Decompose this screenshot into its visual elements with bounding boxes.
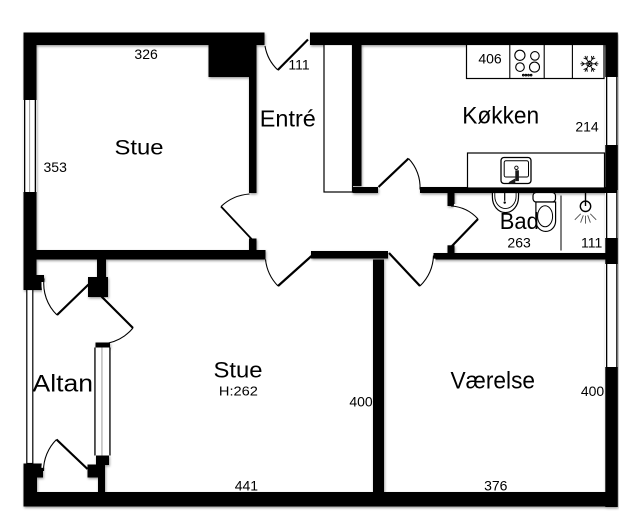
- svg-text:H:262: H:262: [219, 384, 258, 399]
- svg-text:376: 376: [484, 478, 508, 494]
- svg-text:Stue: Stue: [115, 136, 164, 160]
- svg-text:111: 111: [581, 235, 602, 251]
- svg-text:111: 111: [288, 57, 309, 73]
- svg-text:214: 214: [575, 119, 599, 135]
- svg-text:400: 400: [581, 383, 605, 399]
- svg-text:Bad: Bad: [500, 208, 539, 234]
- svg-text:Entré: Entré: [260, 106, 316, 132]
- svg-text:Værelse: Værelse: [451, 367, 536, 394]
- svg-text:441: 441: [235, 478, 259, 494]
- svg-text:406: 406: [478, 50, 502, 66]
- svg-text:Køkken: Køkken: [462, 102, 539, 129]
- svg-text:Altan: Altan: [33, 371, 94, 398]
- svg-text:353: 353: [44, 159, 68, 175]
- svg-text:Stue: Stue: [214, 357, 263, 382]
- svg-text:326: 326: [134, 46, 158, 62]
- svg-text:263: 263: [507, 235, 531, 251]
- svg-text:400: 400: [349, 394, 373, 410]
